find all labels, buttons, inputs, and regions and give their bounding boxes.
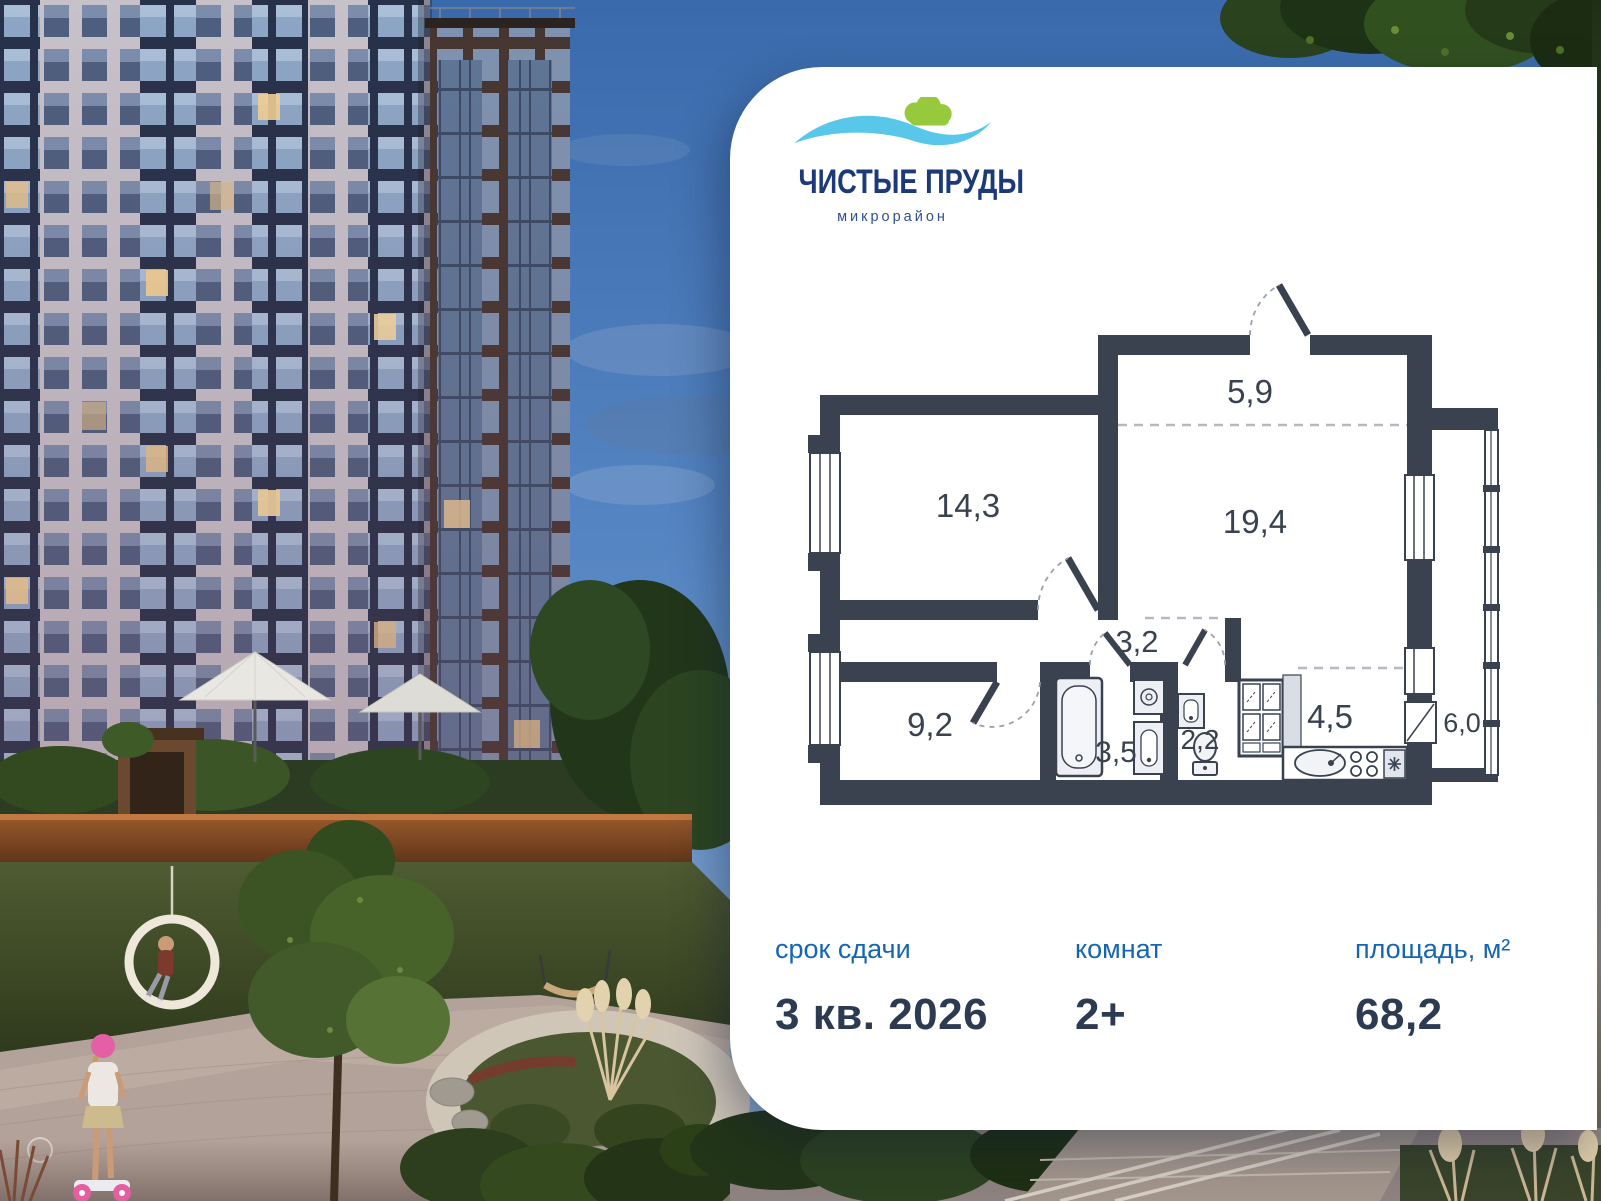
fridge-icon	[1384, 750, 1405, 778]
bush-icon	[904, 97, 951, 125]
stat-area-label: площадь, м²	[1355, 933, 1510, 965]
stat-completion: срок сдачи 3 кв. 2026	[775, 933, 988, 1040]
stat-rooms: комнат 2+	[1075, 933, 1162, 1040]
logo-subtitle: микрорайон	[775, 209, 1010, 225]
promo-image: ЧИСТЫЕ ПРУДЫ микрорайон	[0, 0, 1601, 1201]
apartment-card: ЧИСТЫЕ ПРУДЫ микрорайон	[730, 67, 1597, 1130]
stat-completion-value: 3 кв. 2026	[775, 990, 988, 1040]
logo-wave-icon	[778, 97, 1008, 161]
wave-icon	[794, 116, 991, 145]
kitchen-sink-icon	[1295, 750, 1345, 776]
floor-plan: 5,9 14,3 19,4 3,2 9,2 3,5 2,2 4,5 6,0	[800, 270, 1500, 810]
room-label-balcony: 6,0	[1443, 708, 1481, 738]
washing-machine-icon	[1134, 680, 1164, 714]
stats-row: срок сдачи 3 кв. 2026 комнат 2+ площадь,…	[730, 933, 1597, 1093]
room-label-bathroom: 3,5	[1095, 736, 1137, 769]
room-label-kitchen: 4,5	[1307, 698, 1353, 735]
tall-cabinet	[1283, 675, 1301, 751]
room-label-entry-hall: 5,9	[1227, 373, 1273, 410]
stat-rooms-label: комнат	[1075, 933, 1162, 965]
room-label-corridor: 3,2	[1115, 624, 1158, 659]
stat-rooms-value: 2+	[1075, 990, 1162, 1040]
room-label-bedroom-1: 14,3	[936, 487, 1000, 524]
stat-area-value: 68,2	[1355, 990, 1510, 1040]
stat-area: площадь, м² 68,2	[1355, 933, 1510, 1040]
plan-dashed-partitions	[1118, 425, 1407, 668]
kitchen-counter	[1283, 747, 1407, 780]
kitchen-cabinets	[1239, 680, 1283, 756]
wc-sink-icon	[1178, 694, 1204, 728]
room-label-living-room: 19,4	[1223, 503, 1287, 540]
logo-title: ЧИСТЫЕ ПРУДЫ	[799, 163, 987, 202]
logo: ЧИСТЫЕ ПРУДЫ микрорайон	[775, 97, 1010, 225]
stat-completion-label: срок сдачи	[775, 933, 988, 965]
balcony-glazing	[1483, 430, 1500, 775]
room-label-bedroom-2: 9,2	[907, 706, 953, 743]
room-label-wc: 2,2	[1181, 724, 1220, 755]
bathroom-sink-icon	[1134, 722, 1164, 774]
